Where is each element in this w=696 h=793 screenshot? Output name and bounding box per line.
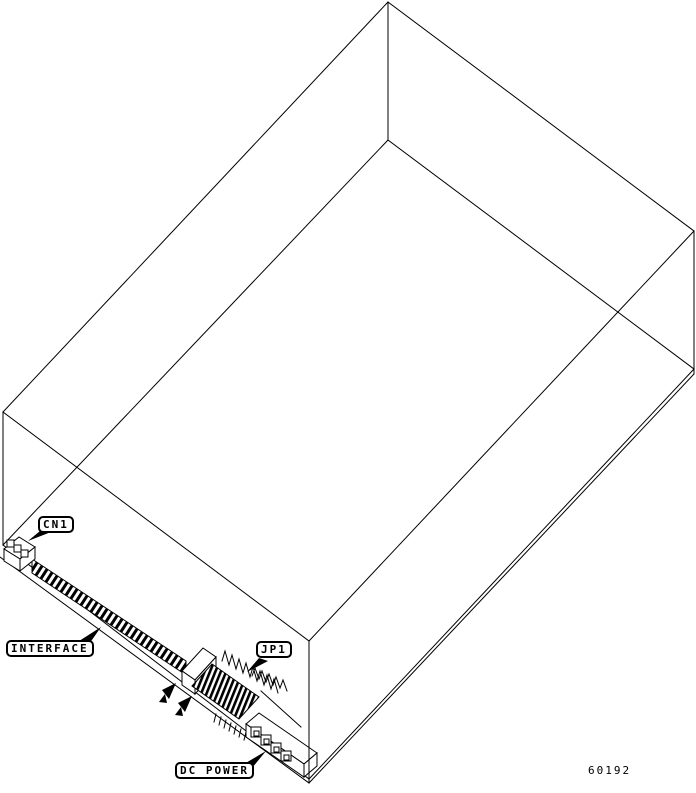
cn1-pin (7, 540, 14, 547)
base-plate-left-edge (0, 557, 309, 783)
pin1-arrow-tail (175, 707, 183, 716)
dc-power-pin-inner (274, 747, 279, 752)
chassis-outline (3, 2, 694, 779)
interface-label: INTERFACE (6, 640, 94, 657)
bottom-back-left-edge (3, 140, 388, 545)
drive-base-plate (0, 369, 694, 783)
figure-number: 60192 (588, 764, 631, 777)
pin1-arrow-tail (159, 694, 167, 703)
dc-power-pin-inner (264, 739, 269, 744)
cn1-pin (21, 550, 28, 557)
bottom-back-right-edge (388, 140, 694, 369)
dc-power-label: DC POWER (175, 762, 254, 779)
top-back-right-edge (388, 2, 694, 231)
jp1-callout-pointer (247, 658, 268, 672)
dc-power-pin-inner (254, 731, 259, 736)
drive-isometric-wireframe (0, 0, 696, 793)
interface-pin-row (32, 559, 186, 675)
dc-power-pin-inner (284, 755, 289, 760)
bottom-front-right-edge (309, 369, 694, 779)
cn1-label: CN1 (38, 516, 74, 533)
interface-connector (32, 559, 186, 675)
top-back-left-edge (3, 2, 388, 412)
cn1-pin (14, 545, 21, 552)
jp1-label: JP1 (256, 641, 292, 658)
technical-diagram-page: CN1 INTERFACE JP1 DC POWER 60192 (0, 0, 696, 793)
